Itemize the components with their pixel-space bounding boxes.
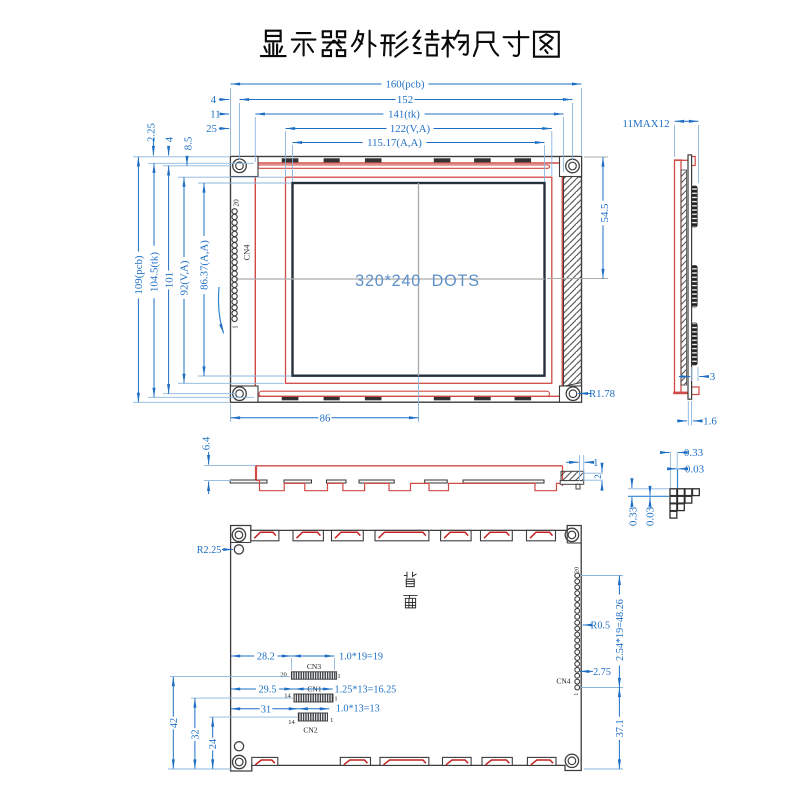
svg-text:86: 86 (320, 412, 331, 424)
svg-text:14: 14 (284, 693, 291, 700)
svg-text:11MAX12: 11MAX12 (622, 118, 669, 130)
svg-text:1.6: 1.6 (703, 416, 717, 428)
svg-text:CN3: CN3 (307, 662, 321, 671)
svg-text:25: 25 (206, 123, 217, 135)
svg-text:1: 1 (330, 717, 333, 724)
svg-text:11: 11 (210, 109, 220, 121)
svg-text:R0.5: R0.5 (591, 620, 611, 631)
svg-text:1: 1 (334, 696, 337, 703)
svg-text:320*240 DOTS: 320*240 DOTS (355, 272, 480, 290)
svg-text:54.5: 54.5 (599, 204, 611, 223)
svg-text:122(V,A): 122(V,A) (390, 123, 431, 135)
svg-text:1.25*13=16.25: 1.25*13=16.25 (335, 685, 397, 696)
svg-text:4: 4 (211, 94, 217, 106)
svg-text:3: 3 (710, 371, 716, 383)
svg-text:104.5(tk): 104.5(tk) (149, 252, 161, 292)
svg-text:CN4: CN4 (556, 677, 570, 686)
svg-text:0.33: 0.33 (684, 447, 704, 459)
svg-text:1: 1 (230, 325, 239, 329)
svg-text:160(pcb): 160(pcb) (386, 79, 425, 91)
svg-text:1: 1 (337, 673, 340, 680)
svg-text:0.33: 0.33 (628, 506, 640, 526)
svg-text:86.37(A,A): 86.37(A,A) (199, 240, 211, 290)
svg-text:20: 20 (231, 199, 240, 207)
svg-text:CN2: CN2 (303, 725, 317, 734)
svg-text:0.03: 0.03 (685, 464, 705, 476)
svg-text:42: 42 (169, 718, 180, 728)
svg-text:6.4: 6.4 (201, 436, 213, 450)
svg-text:4: 4 (164, 136, 176, 142)
svg-text:92(V,A): 92(V,A) (179, 260, 191, 295)
svg-text:109(pcb): 109(pcb) (133, 255, 145, 294)
svg-text:8.5: 8.5 (182, 137, 194, 151)
svg-text:20: 20 (573, 567, 580, 574)
svg-text:2: 2 (593, 474, 603, 479)
svg-text:24: 24 (208, 739, 219, 749)
svg-text:20: 20 (280, 672, 287, 679)
svg-text:2.54*19=48.26: 2.54*19=48.26 (615, 599, 626, 661)
svg-text:14: 14 (288, 719, 295, 726)
svg-text:1: 1 (573, 693, 580, 696)
svg-text:31: 31 (261, 704, 271, 715)
svg-text:CN4: CN4 (241, 244, 251, 261)
svg-text:32: 32 (190, 729, 201, 739)
svg-text:152: 152 (397, 94, 413, 106)
svg-text:1: 1 (593, 457, 599, 469)
svg-text:141(tk): 141(tk) (388, 109, 420, 121)
svg-text:0.03: 0.03 (645, 506, 657, 526)
svg-text:R1.78: R1.78 (589, 388, 615, 400)
svg-text:R2.25: R2.25 (197, 545, 222, 556)
svg-text:37.1: 37.1 (615, 719, 626, 737)
svg-text:29.5: 29.5 (259, 684, 277, 695)
svg-text:115.17(A,A): 115.17(A,A) (367, 137, 422, 149)
svg-text:2.25: 2.25 (145, 123, 157, 142)
svg-text:28.2: 28.2 (257, 651, 275, 662)
svg-text:1.0*19=19: 1.0*19=19 (339, 651, 383, 662)
svg-text:2.75: 2.75 (593, 667, 611, 678)
svg-text:1.0*13=13: 1.0*13=13 (336, 704, 380, 715)
svg-text:101: 101 (163, 272, 175, 288)
